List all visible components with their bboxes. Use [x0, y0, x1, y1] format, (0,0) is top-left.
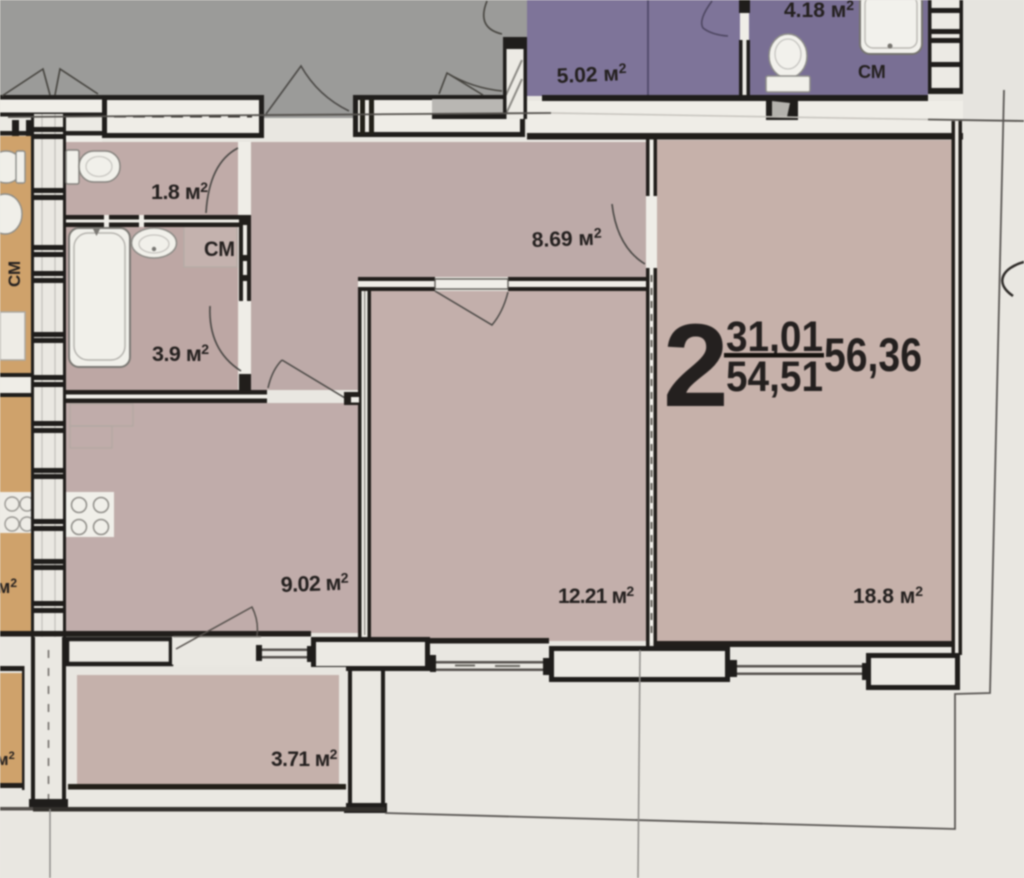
svg-text:12.21 м2: 12.21 м2 — [558, 583, 634, 608]
svg-text:2: 2 — [663, 300, 729, 432]
svg-text:56,36: 56,36 — [824, 328, 922, 381]
svg-text:9.02 м2: 9.02 м2 — [280, 570, 349, 597]
svg-text:1.8 м2: 1.8 м2 — [151, 179, 208, 204]
svg-text:5.02 м2: 5.02 м2 — [556, 60, 627, 88]
svg-text:54,51: 54,51 — [726, 353, 823, 401]
svg-text:4.18 м2: 4.18 м2 — [784, 0, 854, 22]
svg-text:18.8 м2: 18.8 м2 — [853, 583, 923, 608]
svg-text:СМ: СМ — [5, 261, 24, 287]
svg-text:СМ: СМ — [858, 62, 886, 82]
svg-text:3.9 м2: 3.9 м2 — [152, 341, 209, 366]
svg-text:3.71 м2: 3.71 м2 — [271, 746, 338, 771]
svg-text:СМ: СМ — [204, 238, 235, 261]
svg-text:8.69 м2: 8.69 м2 — [531, 225, 602, 252]
